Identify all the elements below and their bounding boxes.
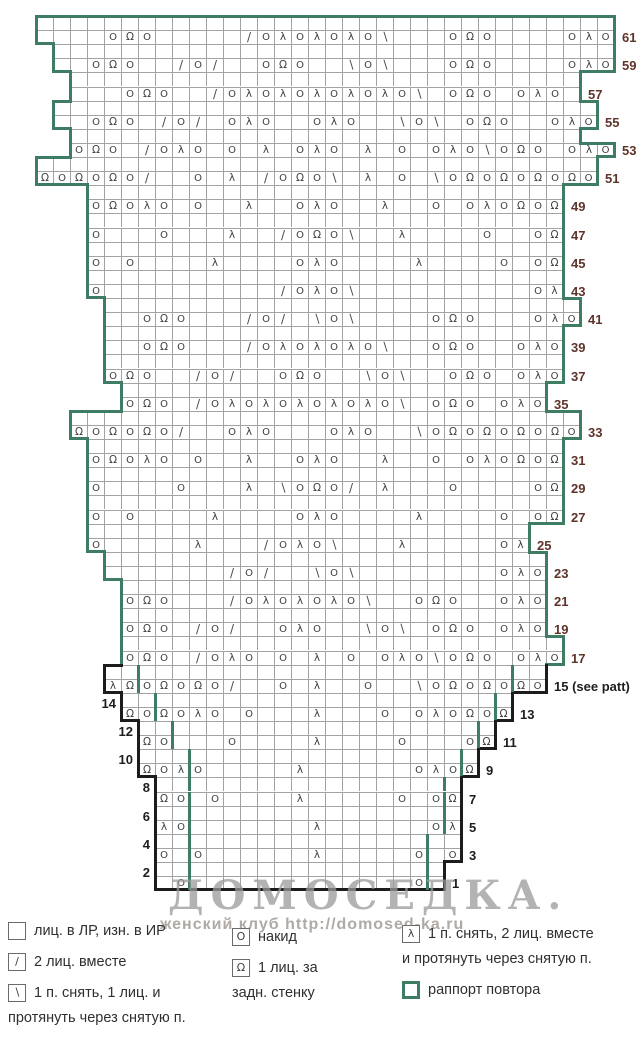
chart-cell: [529, 636, 546, 650]
chart-cell: λ: [138, 453, 155, 467]
chart-cell: [410, 806, 427, 820]
chart-cell: [495, 552, 512, 566]
chart-cell: O: [376, 707, 393, 721]
chart-cell: [291, 651, 308, 665]
chart-cell: λ: [427, 707, 444, 721]
chart-cell: [223, 636, 240, 650]
chart-cell: [444, 213, 461, 227]
chart-cell: Ω: [546, 481, 563, 495]
chart-cell: [189, 129, 206, 143]
chart-cell: [359, 693, 376, 707]
chart-cell: [172, 270, 189, 284]
chart-cell: O: [104, 143, 121, 157]
chart-cell: [87, 157, 104, 171]
chart-cell: λ: [529, 87, 546, 101]
row-number-right: 39: [571, 341, 585, 355]
chart-cell: [512, 228, 529, 242]
chart-cell: [342, 665, 359, 679]
chart-outline-segment: [596, 155, 616, 158]
chart-cell: [342, 44, 359, 58]
chart-cell: [189, 298, 206, 312]
chart-cell: [580, 16, 597, 30]
chart-cell: [444, 256, 461, 270]
chart-cell: O: [291, 284, 308, 298]
chart-cell: [291, 270, 308, 284]
chart-cell: O: [563, 30, 580, 44]
chart-outline-segment: [460, 775, 480, 778]
chart-cell: [410, 157, 427, 171]
chart-cell: [87, 101, 104, 115]
chart-cell: [206, 777, 223, 791]
chart-cell: [87, 242, 104, 256]
chart-cell: [359, 129, 376, 143]
chart-cell: [342, 157, 359, 171]
chart-cell: [495, 439, 512, 453]
chart-cell: [70, 157, 87, 171]
chart-outline-segment: [579, 127, 599, 130]
chart-cell: [138, 467, 155, 481]
chart-outline-segment: [154, 707, 157, 721]
chart-cell: [138, 185, 155, 199]
chart-cell: [410, 44, 427, 58]
chart-cell: [223, 848, 240, 862]
chart-cell: λ: [512, 397, 529, 411]
chart-cell: Ω: [155, 679, 172, 693]
chart-cell: [342, 834, 359, 848]
chart-cell: O: [325, 566, 342, 580]
chart-cell: [563, 72, 580, 86]
chart-cell: [87, 270, 104, 284]
chart-cell: [376, 298, 393, 312]
chart-cell: [223, 552, 240, 566]
chart-cell: [223, 467, 240, 481]
chart-cell: [240, 242, 257, 256]
chart-cell: [325, 383, 342, 397]
chart-cell: [291, 326, 308, 340]
chart-cell: [104, 340, 121, 354]
chart-cell: [240, 439, 257, 453]
chart-cell: [410, 820, 427, 834]
chart-cell: O: [410, 763, 427, 777]
chart-cell: O: [291, 58, 308, 72]
chart-cell: O: [206, 397, 223, 411]
chart-cell: λ: [359, 171, 376, 185]
chart-cell: [495, 72, 512, 86]
chart-cell: [121, 665, 138, 679]
chart-cell: [223, 354, 240, 368]
chart-outline-segment: [511, 665, 514, 679]
chart-cell: O: [223, 735, 240, 749]
chart-cell: [274, 44, 291, 58]
chart-cell: [427, 580, 444, 594]
chart-cell: [427, 777, 444, 791]
chart-cell: ∖: [342, 284, 359, 298]
chart-cell: [206, 16, 223, 30]
chart-cell: O: [155, 735, 172, 749]
chart-cell: [427, 411, 444, 425]
chart-cell: [138, 481, 155, 495]
chart-cell: [240, 143, 257, 157]
chart-cell: λ: [291, 397, 308, 411]
chart-cell: [410, 538, 427, 552]
chart-cell: [529, 16, 546, 30]
chart-cell: [155, 636, 172, 650]
chart-cell: [393, 157, 410, 171]
chart-cell: [546, 16, 563, 30]
chart-cell: [291, 157, 308, 171]
chart-cell: [206, 30, 223, 44]
chart-cell: [359, 199, 376, 213]
chart-cell: [359, 326, 376, 340]
chart-cell: [546, 467, 563, 481]
chart-cell: [325, 213, 342, 227]
chart-cell: Ω: [121, 369, 138, 383]
chart-cell: [274, 608, 291, 622]
chart-cell: [325, 679, 342, 693]
row-number-right: 49: [571, 200, 585, 214]
chart-cell: [359, 16, 376, 30]
chart-cell: [240, 834, 257, 848]
chart-cell: [461, 510, 478, 524]
chart-cell: λ: [240, 115, 257, 129]
chart-cell: [223, 340, 240, 354]
chart-outline-segment: [35, 15, 616, 18]
chart-cell: [223, 157, 240, 171]
chart-cell: [342, 792, 359, 806]
chart-cell: [172, 284, 189, 298]
chart-cell: [104, 538, 121, 552]
chart-cell: O: [172, 820, 189, 834]
chart-cell: [274, 848, 291, 862]
chart-cell: [121, 481, 138, 495]
chart-cell: [444, 510, 461, 524]
chart-cell: [325, 806, 342, 820]
chart-cell: [189, 340, 206, 354]
chart-cell: Ω: [444, 679, 461, 693]
chart-cell: [444, 524, 461, 538]
chart-cell: [410, 467, 427, 481]
chart-cell: Ω: [138, 651, 155, 665]
chart-cell: [189, 439, 206, 453]
chart-cell: [410, 735, 427, 749]
chart-cell: [376, 256, 393, 270]
chart-cell: [512, 383, 529, 397]
chart-cell: [376, 467, 393, 481]
chart-cell: λ: [393, 651, 410, 665]
chart-cell: [206, 425, 223, 439]
chart-cell: [172, 453, 189, 467]
legend-label-line2: и протянуть через снятую п.: [402, 950, 637, 969]
chart-cell: [291, 383, 308, 397]
chart-cell: [512, 16, 529, 30]
row-number-right: 15 (see patt): [554, 680, 630, 694]
legend-label: лиц. в ЛР, изн. в ИР: [34, 922, 166, 941]
chart-cell: Ω: [512, 453, 529, 467]
chart-cell: Ω: [546, 199, 563, 213]
chart-cell: O: [189, 453, 206, 467]
chart-cell: O: [87, 171, 104, 185]
chart-cell: ∖: [342, 58, 359, 72]
chart-cell: [172, 749, 189, 763]
chart-cell: [393, 636, 410, 650]
chart-cell: [257, 256, 274, 270]
chart-cell: O: [257, 312, 274, 326]
chart-cell: [495, 101, 512, 115]
chart-cell: [274, 552, 291, 566]
chart-cell: [104, 129, 121, 143]
chart-cell: O: [461, 143, 478, 157]
chart-cell: [427, 326, 444, 340]
chart-cell: [563, 411, 580, 425]
chart-cell: [495, 298, 512, 312]
chart-cell: [359, 453, 376, 467]
chart-cell: [155, 510, 172, 524]
chart-cell: [359, 495, 376, 509]
chart-cell: [291, 580, 308, 594]
chart-cell: [376, 834, 393, 848]
chart-outline-segment: [188, 848, 191, 862]
chart-cell: [308, 58, 325, 72]
chart-cell: [359, 481, 376, 495]
chart-cell: [427, 848, 444, 862]
chart-cell: [155, 369, 172, 383]
chart-cell: [155, 354, 172, 368]
chart-cell: O: [546, 87, 563, 101]
chart-cell: [240, 354, 257, 368]
chart-cell: [121, 467, 138, 481]
row-number-right: 45: [571, 257, 585, 271]
chart-cell: [393, 72, 410, 86]
chart-cell: O: [427, 792, 444, 806]
chart-cell: O: [240, 566, 257, 580]
chart-cell: [393, 594, 410, 608]
chart-cell: [410, 665, 427, 679]
chart-cell: O: [342, 115, 359, 129]
chart-cell: [325, 185, 342, 199]
chart-cell: [427, 749, 444, 763]
chart-cell: [444, 383, 461, 397]
chart-cell: [138, 749, 155, 763]
chart-cell: ∖: [342, 566, 359, 580]
chart-cell: [342, 411, 359, 425]
chart-cell: [240, 524, 257, 538]
chart-outline-segment: [528, 522, 565, 525]
chart-cell: [359, 72, 376, 86]
chart-outline-segment: [579, 70, 616, 73]
chart-cell: [376, 129, 393, 143]
chart-cell: [189, 213, 206, 227]
chart-cell: [427, 16, 444, 30]
chart-cell: O: [512, 651, 529, 665]
chart-cell: [376, 326, 393, 340]
chart-cell: [376, 820, 393, 834]
chart-cell: [155, 693, 172, 707]
chart-cell: Ω: [138, 87, 155, 101]
chart-cell: [189, 552, 206, 566]
chart-cell: [410, 495, 427, 509]
chart-cell: [240, 792, 257, 806]
chart-cell: [529, 101, 546, 115]
chart-cell: λ: [308, 87, 325, 101]
chart-cell: [478, 44, 495, 58]
chart-cell: [308, 524, 325, 538]
chart-cell: [342, 72, 359, 86]
chart-cell: [291, 72, 308, 86]
chart-cell: [104, 439, 121, 453]
chart-cell: [495, 213, 512, 227]
chart-cell: O: [427, 312, 444, 326]
chart-cell: [376, 411, 393, 425]
chart-cell: O: [87, 58, 104, 72]
chart-cell: [308, 636, 325, 650]
chart-cell: ∖: [393, 622, 410, 636]
chart-cell: [206, 580, 223, 594]
chart-cell: [274, 467, 291, 481]
chart-cell: [546, 44, 563, 58]
legend-item: λ1 п. снять, 2 лиц. вместе: [402, 925, 637, 944]
chart-cell: O: [189, 848, 206, 862]
chart-cell: Ω: [512, 143, 529, 157]
chart-cell: [461, 552, 478, 566]
chart-cell: O: [529, 397, 546, 411]
chart-cell: [393, 467, 410, 481]
chart-cell: [342, 820, 359, 834]
chart-cell: [206, 566, 223, 580]
chart-cell: λ: [206, 510, 223, 524]
chart-cell: [308, 411, 325, 425]
chart-cell: [257, 651, 274, 665]
chart-cell: O: [257, 340, 274, 354]
chart-cell: [478, 213, 495, 227]
chart-cell: [172, 467, 189, 481]
chart-cell: [223, 256, 240, 270]
chart-cell: [427, 129, 444, 143]
chart-cell: O: [325, 510, 342, 524]
chart-cell: ∖: [325, 538, 342, 552]
chart-cell: [410, 552, 427, 566]
chart-cell: [427, 242, 444, 256]
chart-cell: Ω: [104, 58, 121, 72]
row-number-left: 2: [128, 866, 150, 880]
chart-cell: [223, 326, 240, 340]
chart-cell: [410, 749, 427, 763]
chart-cell: [563, 101, 580, 115]
chart-cell: O: [376, 397, 393, 411]
chart-cell: [308, 439, 325, 453]
chart-cell: [189, 495, 206, 509]
chart-cell: [291, 16, 308, 30]
chart-outline-segment: [69, 410, 123, 413]
chart-cell: [257, 439, 274, 453]
chart-cell: ∖: [342, 312, 359, 326]
chart-cell: λ: [376, 453, 393, 467]
chart-cell: [359, 735, 376, 749]
chart-cell: O: [495, 566, 512, 580]
chart-cell: O: [461, 622, 478, 636]
chart-cell: [478, 524, 495, 538]
chart-cell: λ: [376, 481, 393, 495]
chart-cell: λ: [444, 143, 461, 157]
chart-cell: [325, 580, 342, 594]
chart-cell: [342, 721, 359, 735]
chart-cell: [410, 326, 427, 340]
chart-cell: [427, 58, 444, 72]
chart-cell: [376, 185, 393, 199]
chart-cell: [155, 580, 172, 594]
chart-cell: [257, 495, 274, 509]
chart-cell: [359, 552, 376, 566]
chart-cell: λ: [240, 453, 257, 467]
chart-cell: [427, 481, 444, 495]
chart-cell: [461, 608, 478, 622]
chart-cell: O: [155, 425, 172, 439]
chart-outline-segment: [477, 721, 480, 735]
chart-cell: [104, 552, 121, 566]
chart-cell: [223, 129, 240, 143]
chart-cell: O: [87, 115, 104, 129]
chart-cell: [478, 340, 495, 354]
chart-cell: [529, 580, 546, 594]
chart-cell: [359, 721, 376, 735]
chart-cell: [206, 383, 223, 397]
chart-cell: [257, 16, 274, 30]
chart-cell: [87, 213, 104, 227]
chart-cell: [359, 538, 376, 552]
chart-cell: Ω: [546, 425, 563, 439]
chart-cell: [342, 580, 359, 594]
chart-cell: [478, 157, 495, 171]
chart-cell: O: [121, 256, 138, 270]
chart-cell: [121, 143, 138, 157]
chart-cell: [291, 566, 308, 580]
chart-cell: [206, 848, 223, 862]
chart-cell: O: [189, 199, 206, 213]
chart-cell: [427, 665, 444, 679]
chart-cell: [172, 524, 189, 538]
chart-cell: [70, 16, 87, 30]
chart-cell: O: [308, 622, 325, 636]
chart-cell: [495, 44, 512, 58]
chart-cell: [274, 834, 291, 848]
chart-cell: [376, 270, 393, 284]
chart-cell: [308, 721, 325, 735]
chart-cell: ∖: [308, 566, 325, 580]
chart-cell: [359, 213, 376, 227]
chart-cell: O: [87, 228, 104, 242]
chart-cell: [189, 467, 206, 481]
chart-cell: [461, 213, 478, 227]
chart-outline-segment: [188, 834, 191, 848]
chart-cell: O: [359, 30, 376, 44]
chart-cell: [359, 524, 376, 538]
legend-column: лиц. в ЛР, изн. в ИР/2 лиц. вместе∖1 п. …: [8, 922, 233, 1028]
chart-cell: [138, 72, 155, 86]
chart-cell: [325, 298, 342, 312]
chart-cell: [206, 538, 223, 552]
chart-cell: [546, 213, 563, 227]
chart-cell: [172, 566, 189, 580]
chart-cell: [376, 792, 393, 806]
chart-cell: [138, 383, 155, 397]
chart-cell: O: [240, 397, 257, 411]
chart-cell: [223, 270, 240, 284]
chart-cell: O: [155, 199, 172, 213]
chart-cell: [121, 213, 138, 227]
chart-cell: O: [155, 848, 172, 862]
chart-cell: [104, 298, 121, 312]
chart-cell: [155, 242, 172, 256]
chart-cell: O: [189, 763, 206, 777]
